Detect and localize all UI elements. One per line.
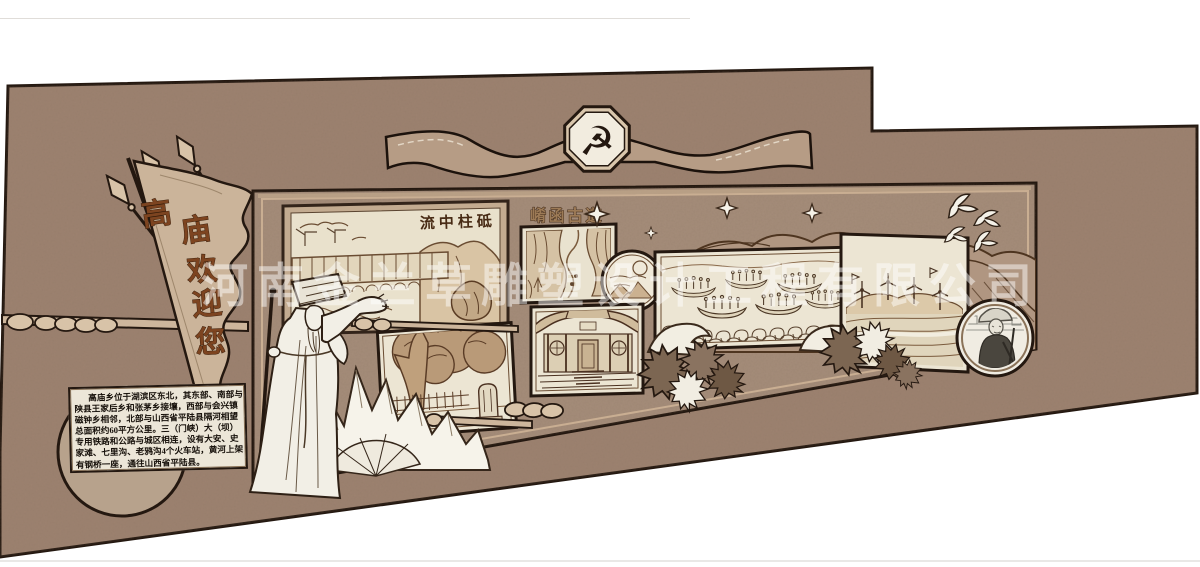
party-emblem-icon: ☭ — [565, 107, 630, 172]
township-info-panel: 高庙乡位于湖滨区东北，其东部、南部与 陕县王家后乡和张茅乡接壤，西部与会兴镇 磁… — [68, 383, 248, 473]
person-medallion — [957, 300, 1033, 376]
hand — [268, 347, 280, 357]
cultural-wall-rendering: 高 庙 欢 迎 您 ☭ — [0, 0, 1200, 567]
flag-char-2: 庙 — [178, 211, 213, 250]
flag-char-1: 高 — [139, 195, 174, 234]
moon-medallion — [602, 251, 662, 311]
panel-temple — [528, 300, 648, 396]
flag-char-5: 您 — [195, 324, 227, 361]
temple-plaque — [580, 322, 596, 330]
hammer-sickle-icon: ☭ — [579, 119, 615, 165]
flag-char-4: 迎 — [191, 286, 224, 323]
flag-char-3: 欢 — [185, 252, 220, 290]
stone-stele — [478, 383, 498, 418]
wall-scene: 高 庙 欢 迎 您 ☭ — [0, 0, 1200, 567]
dam-panel-title: 流中柱砥 — [420, 212, 497, 233]
